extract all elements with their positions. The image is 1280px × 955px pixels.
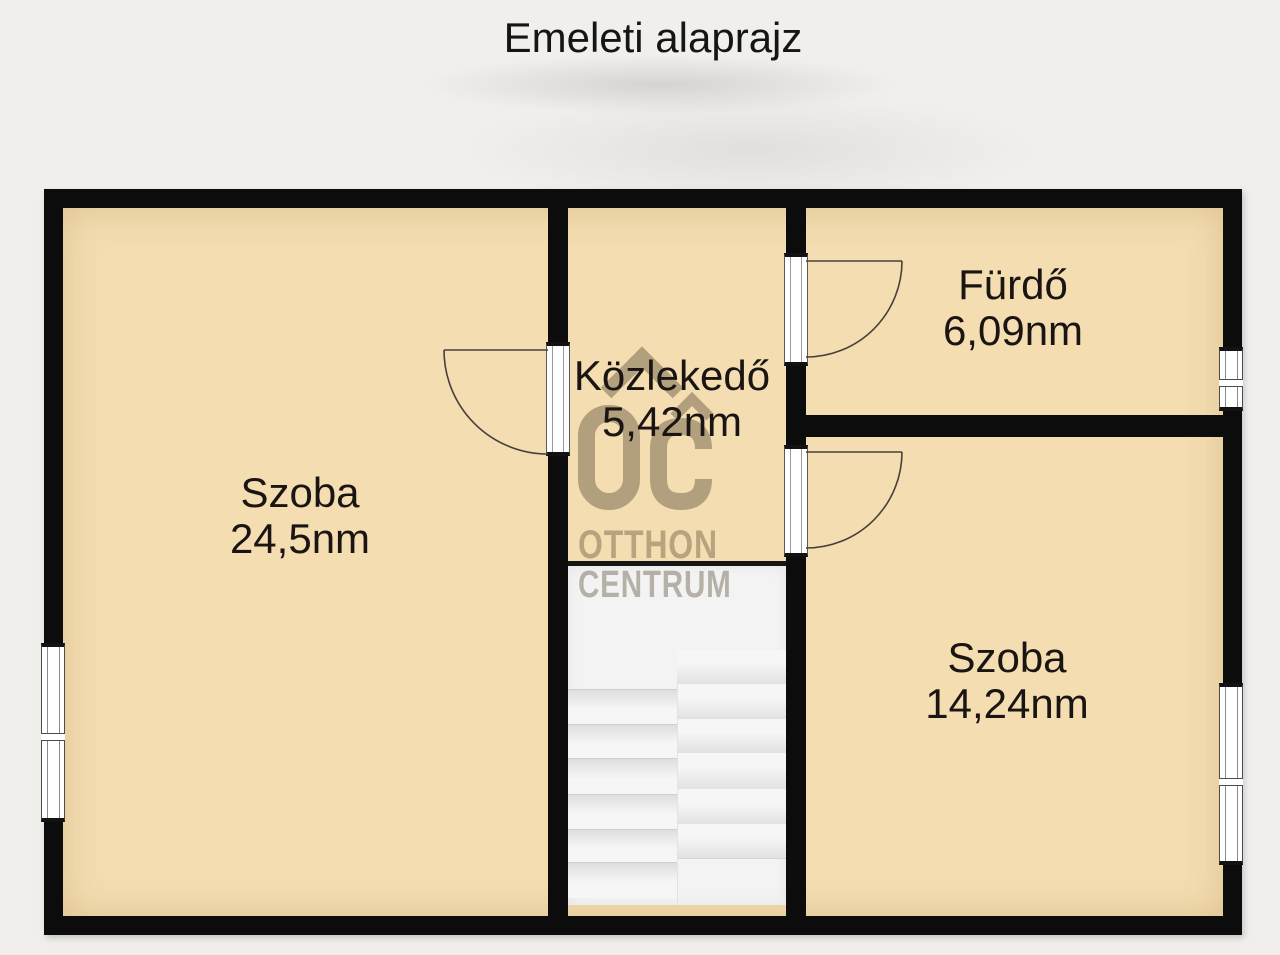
stair-step <box>677 789 786 825</box>
stair-step <box>568 689 677 725</box>
wall-hall-furdo-upper <box>786 208 806 253</box>
room-area: 6,09nm <box>803 308 1223 354</box>
room-label-furdo: Fürdő 6,09nm <box>803 262 1223 354</box>
page-title: Emeleti alaprajz <box>253 14 1053 62</box>
window-szoba2 <box>1219 683 1243 865</box>
room-area: 5,42nm <box>462 399 882 445</box>
room-label-szoba1: Szoba 24,5nm <box>90 470 510 562</box>
room-name: Fürdő <box>803 262 1223 308</box>
door-jamb-hall-szoba2 <box>784 445 808 557</box>
floor-plan-page: Emeleti alaprajz <box>0 0 1280 955</box>
window-divider <box>41 733 65 741</box>
stair-step <box>677 824 786 859</box>
room-name: Közlekedő <box>462 353 882 399</box>
room-name: Szoba <box>797 635 1217 681</box>
stair-step <box>568 829 677 863</box>
wall-szoba-hall-lower <box>548 456 568 916</box>
watermark-text-centrum: CENTRUM <box>578 566 732 604</box>
wall-szoba-hall-upper <box>548 208 568 342</box>
stair-seam <box>677 680 678 905</box>
stair-step <box>568 758 677 795</box>
stair-step <box>568 724 677 759</box>
stair-step <box>677 719 786 754</box>
stair-step <box>568 794 677 830</box>
window-szoba1 <box>41 643 65 822</box>
room-area: 14,24nm <box>797 681 1217 727</box>
window-furdo <box>1219 347 1243 411</box>
stair-step <box>677 650 786 685</box>
stair-step <box>677 753 786 790</box>
window-divider <box>1219 778 1243 786</box>
room-label-kozlekedo: Közlekedő 5,42nm <box>462 353 882 445</box>
room-label-szoba2: Szoba 14,24nm <box>797 635 1217 727</box>
stair-step <box>568 862 677 898</box>
window-divider <box>1219 379 1243 387</box>
watermark-text-otthon: OTTHON <box>578 525 718 565</box>
room-area: 24,5nm <box>90 516 510 562</box>
room-name: Szoba <box>90 470 510 516</box>
stair-step <box>677 684 786 720</box>
wall-stairs-szoba2 <box>786 557 806 916</box>
